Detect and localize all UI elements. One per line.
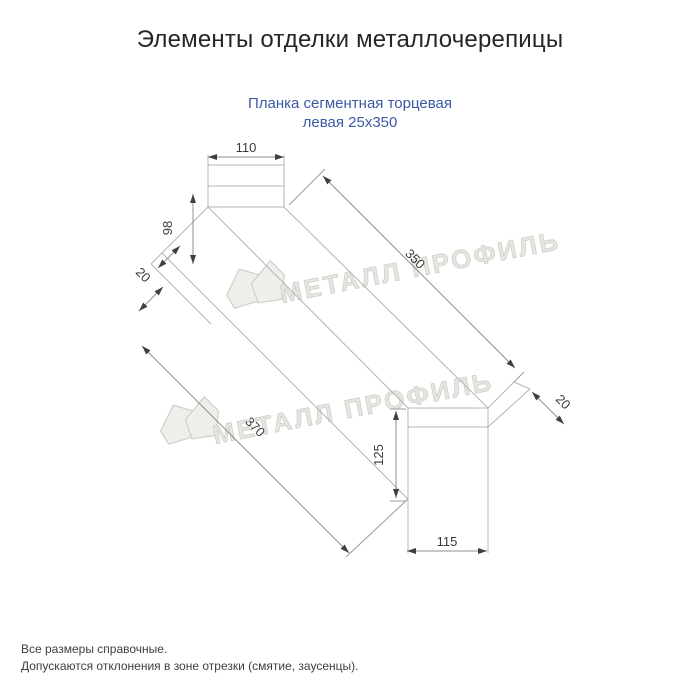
strip-top-edge [284,207,488,408]
dim-tie-98 [158,246,180,268]
dimension-lines [139,157,564,557]
left-hem-fold-line [151,264,211,324]
part-outline [151,155,530,553]
dim-label-20-right: 20 [553,391,574,412]
footnote-line-1: Все размеры справочные. [21,641,358,658]
dim-line-370 [142,346,349,553]
footnotes: Все размеры справочные. Допускаются откл… [21,641,358,675]
ext-line-350-right [514,372,524,382]
ext-line-370-right [346,499,408,557]
dim-label-115: 115 [437,534,458,549]
watermark-group: МЕТАЛЛ ПРОФИЛЬ МЕТАЛЛ ПРОФИЛЬ [157,225,563,450]
ext-line-350-left [289,169,325,205]
dim-label-98: 98 [160,221,175,235]
dim-label-125: 125 [371,444,386,466]
dim-line-20-left [139,287,163,311]
dim-label-20-left: 20 [133,264,154,285]
dim-label-110: 110 [236,140,257,155]
left-hem-edge [151,253,162,264]
technical-drawing: МЕТАЛЛ ПРОФИЛЬ МЕТАЛЛ ПРОФИЛЬ [0,0,700,700]
footnote-line-2: Допускаются отклонения в зоне отрезки (с… [21,658,358,675]
right-hem-end-edge [514,382,530,389]
dimension-labels: 110 98 20 350 20 370 125 115 [133,140,574,549]
